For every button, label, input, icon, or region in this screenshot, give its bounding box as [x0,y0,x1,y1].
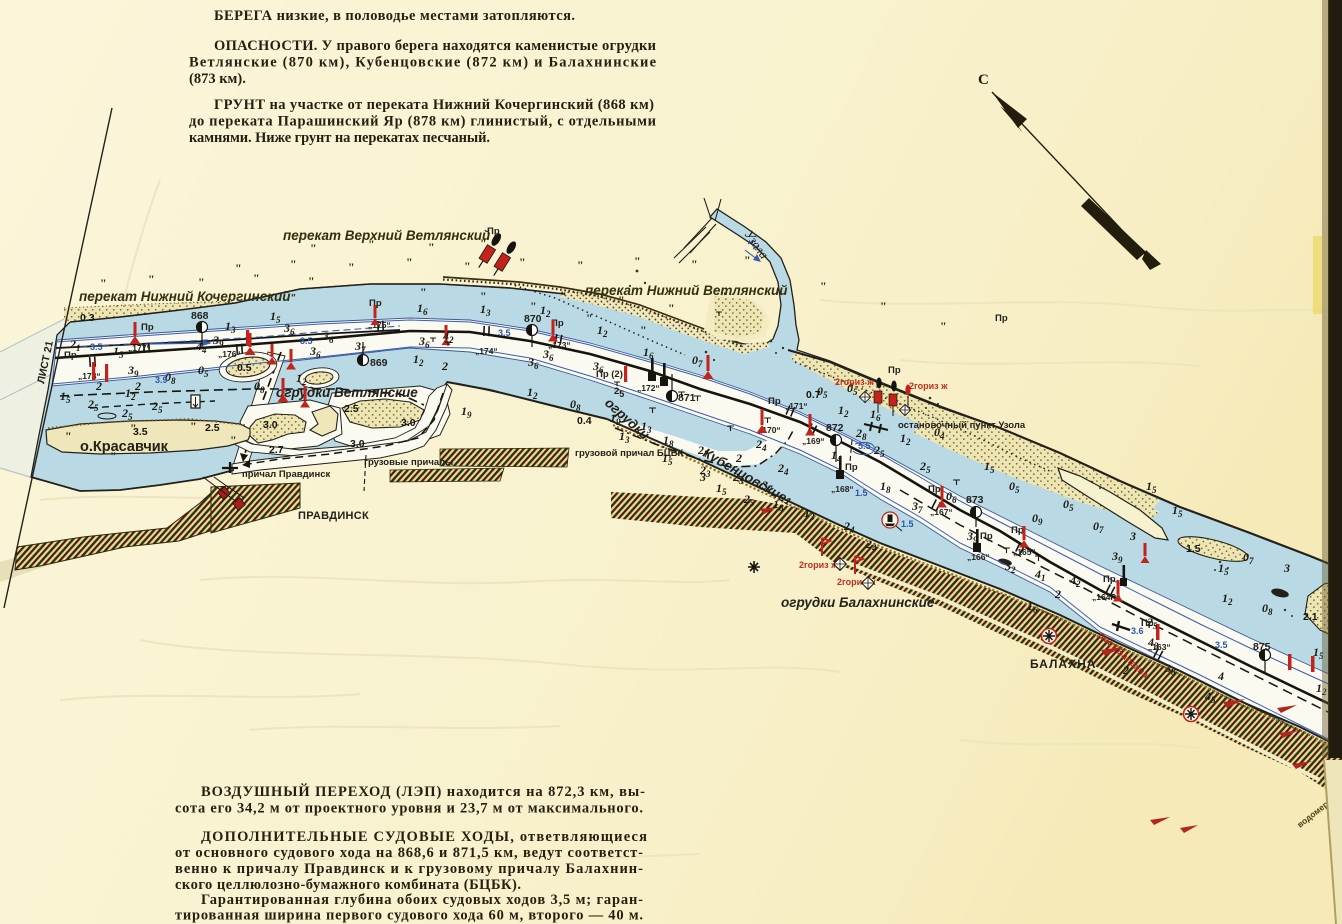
svg-text:„165“: „165“ [1013,547,1036,557]
svg-text:сота его 34,2 м от проектного: сота его 34,2 м от проектного уровня и 2… [175,801,643,817]
svg-text:3.5: 3.5 [90,342,103,352]
svg-text:": " [480,236,487,250]
svg-text:3: 3 [1283,561,1290,575]
svg-text:1.5: 1.5 [1186,543,1201,555]
svg-text:2.1: 2.1 [1303,611,1318,623]
svg-text:1.5: 1.5 [855,488,868,498]
svg-text:3.0: 3.0 [350,438,365,450]
svg-text:Пр: Пр [1103,574,1116,585]
svg-text:Пр: Пр [768,396,781,407]
svg-text:ГРУНТ на участке от переката Н: ГРУНТ на участке от переката Нижний Коче… [214,97,654,113]
svg-text:Пр: Пр [888,365,901,376]
svg-text:": " [577,258,584,272]
svg-text:2: 2 [1122,663,1129,677]
svg-text:": " [190,419,197,433]
svg-text:2: 2 [441,359,448,373]
svg-text:": " [368,237,375,251]
svg-text:": " [530,299,537,313]
svg-text:0.3: 0.3 [80,312,95,324]
svg-text:": " [235,261,242,275]
svg-text:2: 2 [735,451,742,465]
svg-text:3: 3 [699,470,706,484]
svg-text:(873 км).: (873 км). [189,71,246,87]
svg-text:огрудки Балахнинские: огрудки Балахнинские [781,595,935,610]
svg-text:Пр: Пр [980,531,993,542]
svg-text:„169“: „169“ [802,436,825,446]
svg-text:0.5: 0.5 [237,362,252,374]
svg-text:ПРАВДИНСК: ПРАВДИНСК [298,510,369,522]
svg-text:": " [820,279,827,293]
svg-text:ВОЗДУШНЫЙ ПЕРЕХОД (ЛЭП) находи: ВОЗДУШНЫЙ ПЕРЕХОД (ЛЭП) находится на 872… [201,783,645,800]
svg-text:тированная ширина первого судо: тированная ширина первого судового хода … [175,908,643,924]
svg-text:грузовые причалы: грузовые причалы [364,457,453,468]
svg-text:Пр: Пр [141,322,154,333]
svg-text:0.7: 0.7 [806,389,821,401]
svg-text:3.9: 3.9 [155,375,168,385]
svg-text:ского целлюлозно-бумажного ком: ского целлюлозно-бумажного комбината (БЦ… [175,877,521,893]
svg-text:": " [720,289,727,303]
svg-text:БАЛАХНА: БАЛАХНА [1030,657,1096,671]
svg-text:„166“: „166“ [967,552,990,562]
svg-text:ДОПОЛНИТЕЛЬНЫЕ СУДОВЫЕ ХОДЫ,: ДОПОЛНИТЕЛЬНЫЕ СУДОВЫЕ ХОДЫ, ответвляющи… [201,829,647,845]
svg-text:2.5: 2.5 [205,422,220,434]
svg-text:3.6: 3.6 [1131,626,1144,636]
svg-text:2.5: 2.5 [344,403,359,415]
svg-text:": " [148,272,155,286]
svg-text:875: 875 [1253,641,1271,653]
svg-text:": " [940,319,947,333]
svg-text:2гориз ж: 2гориз ж [799,560,838,570]
svg-text:": " [519,255,526,269]
svg-text:от основного судового хода на: от основного судового хода на 868,6 и 87… [175,845,643,861]
svg-text:„174“: „174“ [475,346,498,356]
svg-text:Гарантированная глубина обои: Гарантированная глубина обоих судовых хо… [201,892,643,908]
svg-text:3.5: 3.5 [498,328,511,338]
svg-text:Ветлянские (870 км), Кубенц: Ветлянские (870 км), Кубенцовские (872 к… [189,55,657,71]
svg-text:о.Красавчик: о.Красавчик [80,439,169,455]
svg-text:2: 2 [1054,587,1061,601]
svg-text:„177“: „177“ [128,343,151,353]
svg-text:": " [310,241,317,255]
svg-text:„176“: „176“ [218,349,241,359]
svg-text:": " [691,257,698,271]
svg-text:": " [464,259,471,273]
svg-text:": " [744,253,751,267]
svg-text:3: 3 [1129,529,1136,543]
svg-text:огрудки Ветлянские: огрудки Ветлянские [276,385,418,400]
svg-text:": " [618,293,625,307]
svg-text:": " [406,255,413,269]
svg-text:2: 2 [95,379,102,393]
svg-text:869: 869 [370,357,388,369]
svg-text:3.0: 3.0 [263,419,278,431]
svg-text:": " [634,254,641,268]
svg-text:872: 872 [826,422,844,434]
svg-text:": " [428,240,435,254]
svg-text:„172“: „172“ [637,383,660,393]
svg-text:Пр: Пр [845,462,858,473]
svg-text:": " [253,271,260,285]
svg-text:камнями. Ниже грунт на перекат: камнями. Ниже грунт на перекатах песчаны… [189,130,490,146]
svg-text:венно к причалу Правдинск: венно к причалу Правдинск и к грузовому … [175,861,643,877]
svg-text:Пр: Пр [995,313,1008,324]
svg-text:": " [640,323,647,337]
svg-text:": " [130,421,137,435]
svg-text:": " [560,289,567,303]
svg-text:остановочный пункт Узола: остановочный пункт Узола [898,420,1026,431]
svg-text:": " [586,311,593,325]
svg-text:ОПАСНОСТИ. У правого берега на: ОПАСНОСТИ. У правого берега находятся ка… [214,38,656,54]
svg-text:": " [230,433,237,447]
svg-text:873: 873 [966,494,984,506]
svg-text:": " [308,274,315,288]
svg-text:1.5: 1.5 [901,519,914,529]
svg-text:": " [100,276,107,290]
svg-text:3.5: 3.5 [1215,640,1228,650]
svg-text:С: С [978,72,989,88]
svg-text:": " [880,299,887,313]
svg-text:2гориз ж: 2гориз ж [909,381,948,391]
svg-text:": " [110,449,117,463]
svg-text:перекат Нижний Кочергинский": перекат Нижний Кочергинский" [79,289,296,304]
svg-text:причал Правдинск: причал Правдинск [242,469,331,480]
svg-text:": " [65,429,72,443]
svg-text:„167“: „167“ [930,507,953,517]
svg-text:2гориз ж: 2гориз ж [835,377,874,387]
svg-text:4: 4 [1217,669,1224,683]
svg-text:": " [348,260,355,274]
svg-text:": " [480,289,487,303]
svg-text:": " [668,301,675,315]
svg-text:перекат Нижний Ветлянский: перекат Нижний Ветлянский [585,283,788,298]
svg-text:Пр: Пр [1011,525,1024,536]
svg-text:2.7: 2.7 [269,444,284,456]
svg-text:БЕРЕГА низкие, в половодье мес: БЕРЕГА низкие, в половодье местами затоп… [214,8,575,24]
svg-text:3.5: 3.5 [300,336,313,346]
svg-text:3.0: 3.0 [401,417,416,429]
svg-text:": " [198,275,205,289]
svg-text:2: 2 [134,379,141,393]
svg-text:до переката Парашинский Яр (87: до переката Парашинский Яр (878 км) глин… [189,114,656,130]
svg-text:Пр: Пр [64,350,77,361]
svg-text:Пр: Пр [928,484,941,495]
svg-text:„171“: „171“ [785,401,808,411]
svg-text:871: 871 [678,392,696,404]
svg-text:": " [290,257,297,271]
svg-text:": " [420,285,427,299]
svg-text:868: 868 [191,310,209,322]
svg-text:0.4: 0.4 [577,415,592,427]
svg-text:„168“: „168“ [831,484,854,494]
